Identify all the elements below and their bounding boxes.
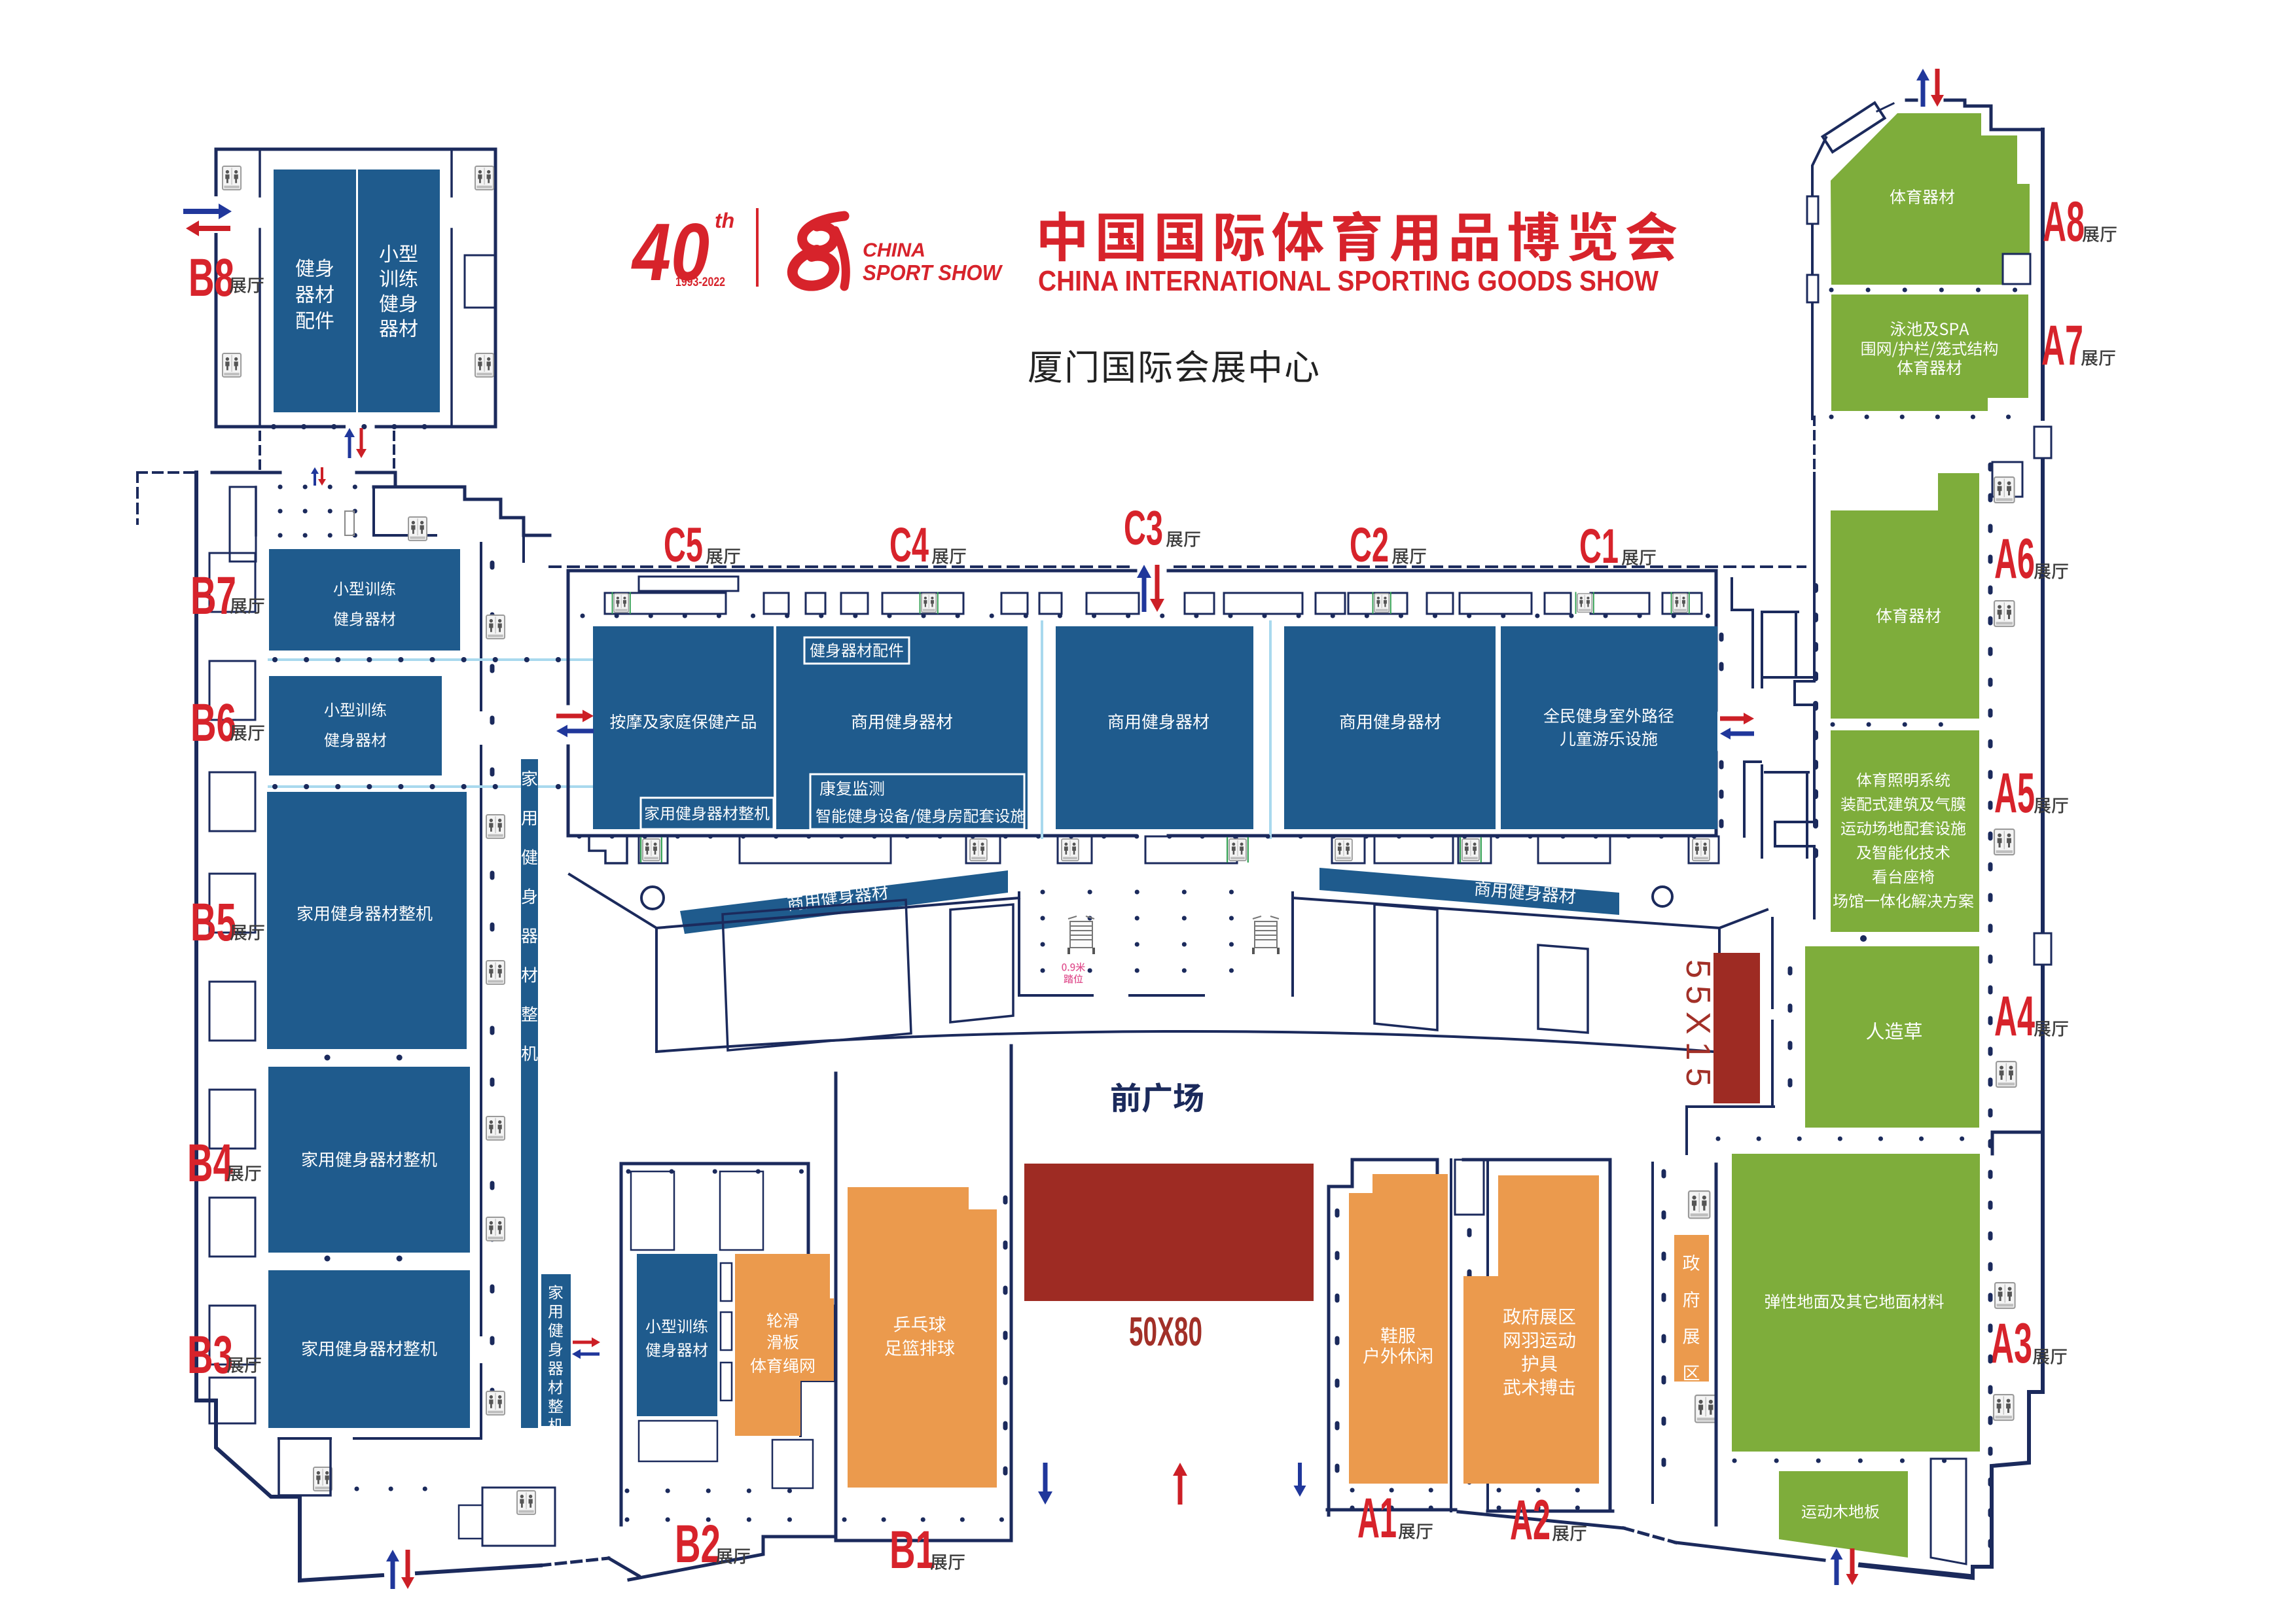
svg-text:B3: B3 [187,1325,233,1385]
svg-text:th: th [715,209,734,232]
svg-text:A5: A5 [1994,762,2035,825]
svg-text:C4: C4 [889,518,929,572]
svg-text:50X80: 50X80 [1129,1310,1202,1355]
svg-text:C2: C2 [1350,518,1389,572]
svg-text:A6: A6 [1994,527,2035,590]
svg-text:A3: A3 [1990,1312,2032,1375]
svg-text:CHINA: CHINA [863,240,925,261]
svg-text:B1: B1 [889,1520,935,1580]
svg-text:B2: B2 [675,1514,721,1574]
svg-text:B7: B7 [190,566,236,626]
svg-text:A7: A7 [2041,314,2083,377]
svg-text:C3: C3 [1124,501,1163,555]
svg-text:B4: B4 [187,1133,233,1193]
svg-text:B8: B8 [188,248,234,308]
svg-text:A4: A4 [1994,985,2035,1048]
svg-text:A8: A8 [2043,190,2085,253]
svg-text:C1: C1 [1579,519,1619,573]
svg-text:SPORT SHOW: SPORT SHOW [863,260,1003,285]
svg-text:CHINA INTERNATIONAL SPORTING G: CHINA INTERNATIONAL SPORTING GOODS SHOW [1038,265,1659,297]
svg-text:B5: B5 [190,893,236,952]
svg-text:1993-2022: 1993-2022 [675,276,725,289]
svg-text:B6: B6 [190,693,236,753]
svg-text:C5: C5 [664,518,703,572]
svg-text:A2: A2 [1510,1489,1551,1552]
svg-text:A1: A1 [1357,1487,1397,1550]
svg-text:55X15: 55X15 [1679,959,1717,1094]
